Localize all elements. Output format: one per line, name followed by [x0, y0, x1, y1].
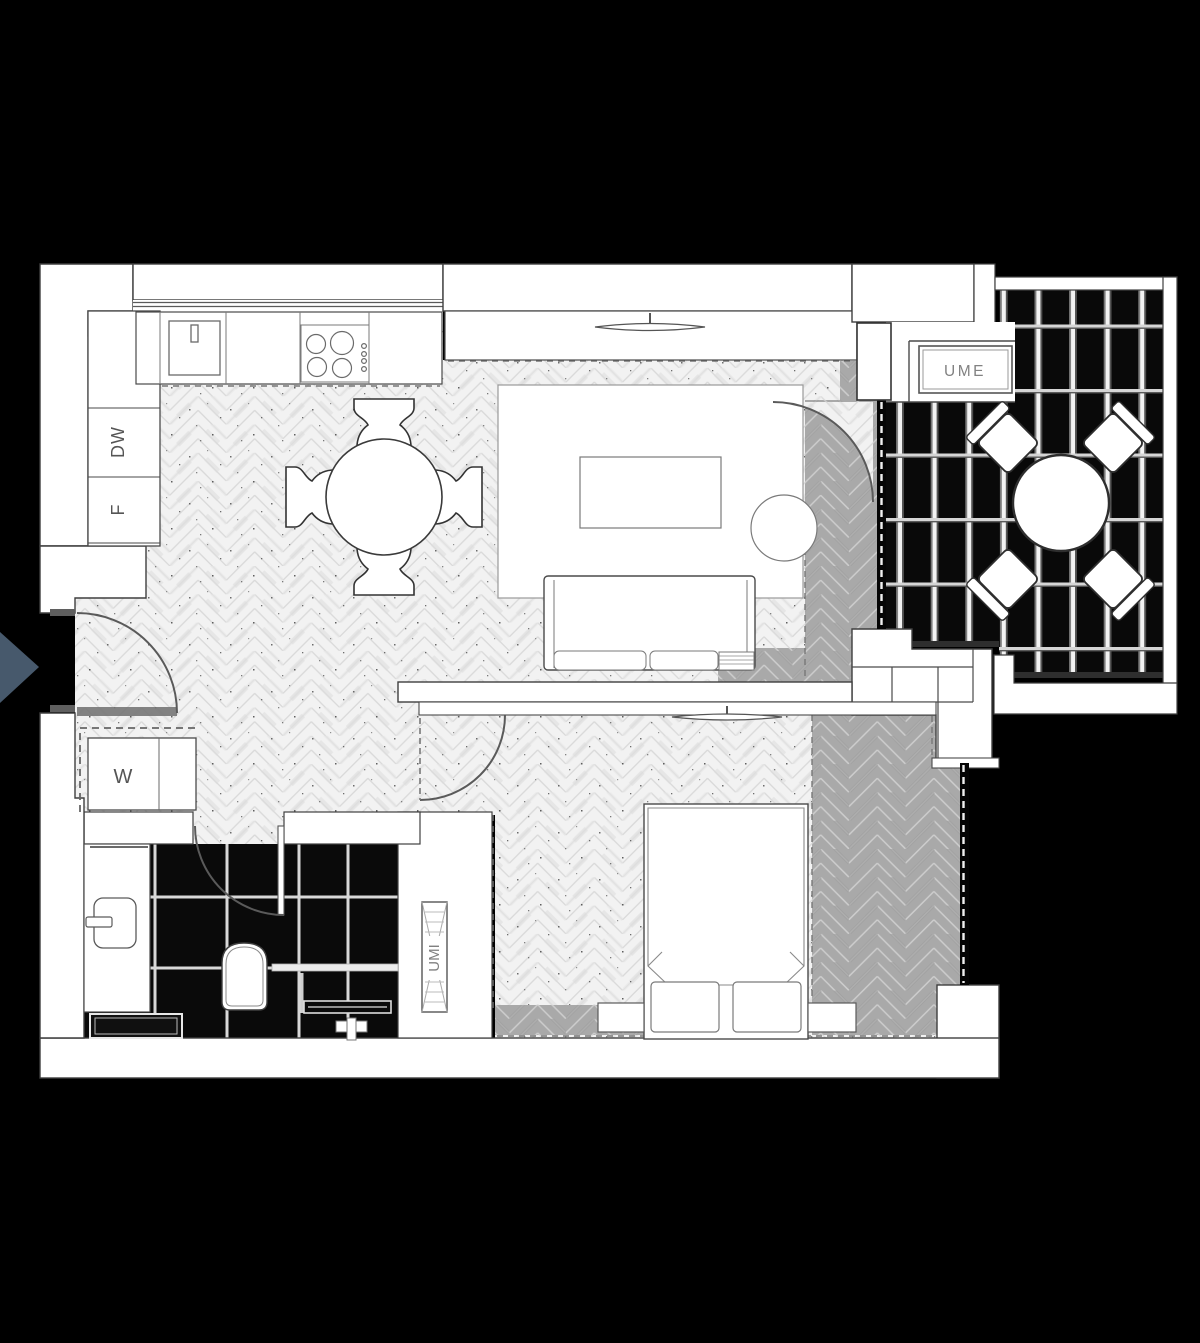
svg-text:UMI: UMI	[426, 944, 443, 972]
svg-text:DW: DW	[108, 426, 128, 458]
svg-text:F: F	[108, 505, 128, 516]
svg-text:UME: UME	[944, 363, 986, 380]
svg-text:W: W	[114, 766, 133, 788]
